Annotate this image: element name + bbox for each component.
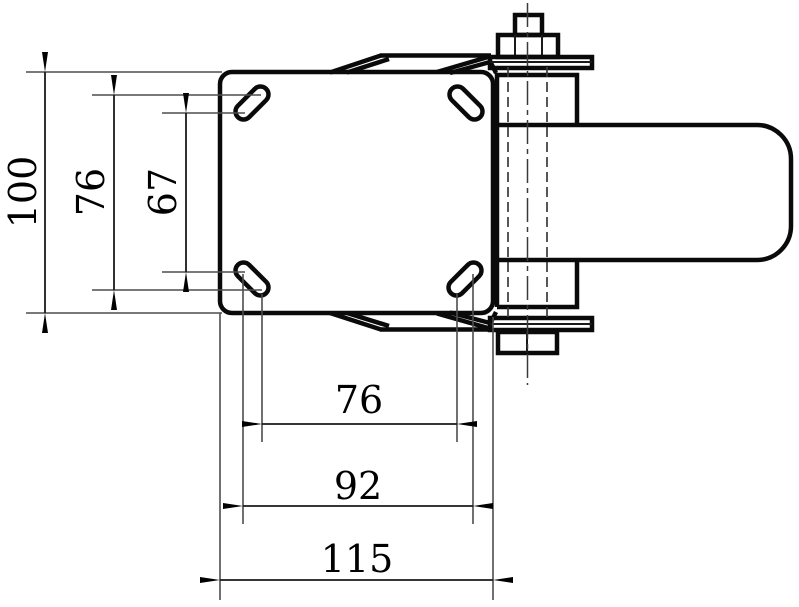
dimension-bolt-horizontal-outer: 92 [243, 464, 473, 508]
axle-bolt-bottom [490, 318, 592, 353]
slot-hole-top-right [446, 83, 486, 123]
fork-leg-upper-outline [497, 75, 577, 307]
slot-hole-bottom-right [445, 259, 485, 299]
dim-label-67: 67 [141, 168, 185, 216]
extension-lines [26, 72, 493, 600]
dimension-bolt-vertical-outer: 76 [69, 95, 114, 290]
dim-label-100: 100 [1, 156, 45, 229]
dimension-plate-height: 100 [1, 72, 45, 313]
caster-technical-drawing: 100 76 67 76 92 115 [0, 0, 799, 607]
fork-leg-lower-outline [497, 260, 577, 307]
dim-label-76v: 76 [69, 168, 113, 216]
slot-hole-bottom-left [232, 259, 272, 299]
wheel-outline [497, 125, 791, 260]
dim-label-92: 92 [334, 464, 382, 508]
dimension-plate-width: 115 [220, 537, 493, 581]
wheel [497, 125, 791, 260]
axle-bolt-top [490, 15, 592, 68]
hidden-and-center-lines [508, 3, 547, 385]
slot-hole-top-left [232, 83, 272, 123]
bolt-tip [515, 15, 542, 35]
fork-leg [497, 75, 577, 307]
dimension-bolt-vertical-inner: 67 [141, 113, 186, 272]
drawing-canvas: 100 76 67 76 92 115 [0, 0, 799, 607]
dimension-bolt-horizontal-inner: 76 [262, 378, 457, 424]
dim-label-76h: 76 [335, 378, 383, 422]
dim-label-115: 115 [321, 537, 394, 581]
bolt-slots [232, 83, 486, 299]
